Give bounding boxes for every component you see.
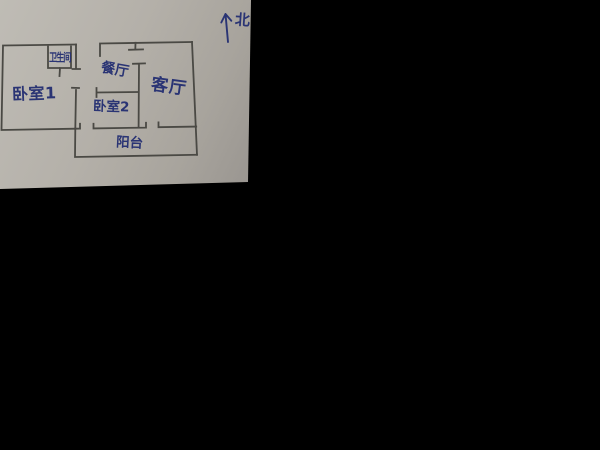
wall-top-middle	[100, 42, 192, 56]
wall-bedroom1-right	[72, 45, 80, 129]
room-label-bathroom: 卫生间	[49, 52, 70, 63]
photo-background: 卫生间 卧室1 餐厅 卧室2 客厅 阳台 北	[0, 0, 600, 450]
wall-dining-living-divider	[133, 63, 145, 127]
room-label-bedroom1: 卧室1	[12, 85, 57, 103]
wall-right-outer	[192, 42, 197, 155]
wall-dining-bedroom2-divider	[97, 88, 139, 97]
wall-bottom-main	[75, 122, 196, 128]
north-arrow-shaft	[221, 14, 231, 42]
north-label: 北	[234, 9, 250, 31]
floorplan-paper: 卫生间 卧室1 餐厅 卧室2 客厅 阳台 北	[0, 0, 252, 190]
room-label-bedroom2: 卧室2	[93, 100, 130, 115]
room-label-balcony: 阳台	[116, 136, 144, 151]
room-label-living: 客厅	[150, 77, 188, 99]
north-arrow-icon	[221, 14, 231, 42]
